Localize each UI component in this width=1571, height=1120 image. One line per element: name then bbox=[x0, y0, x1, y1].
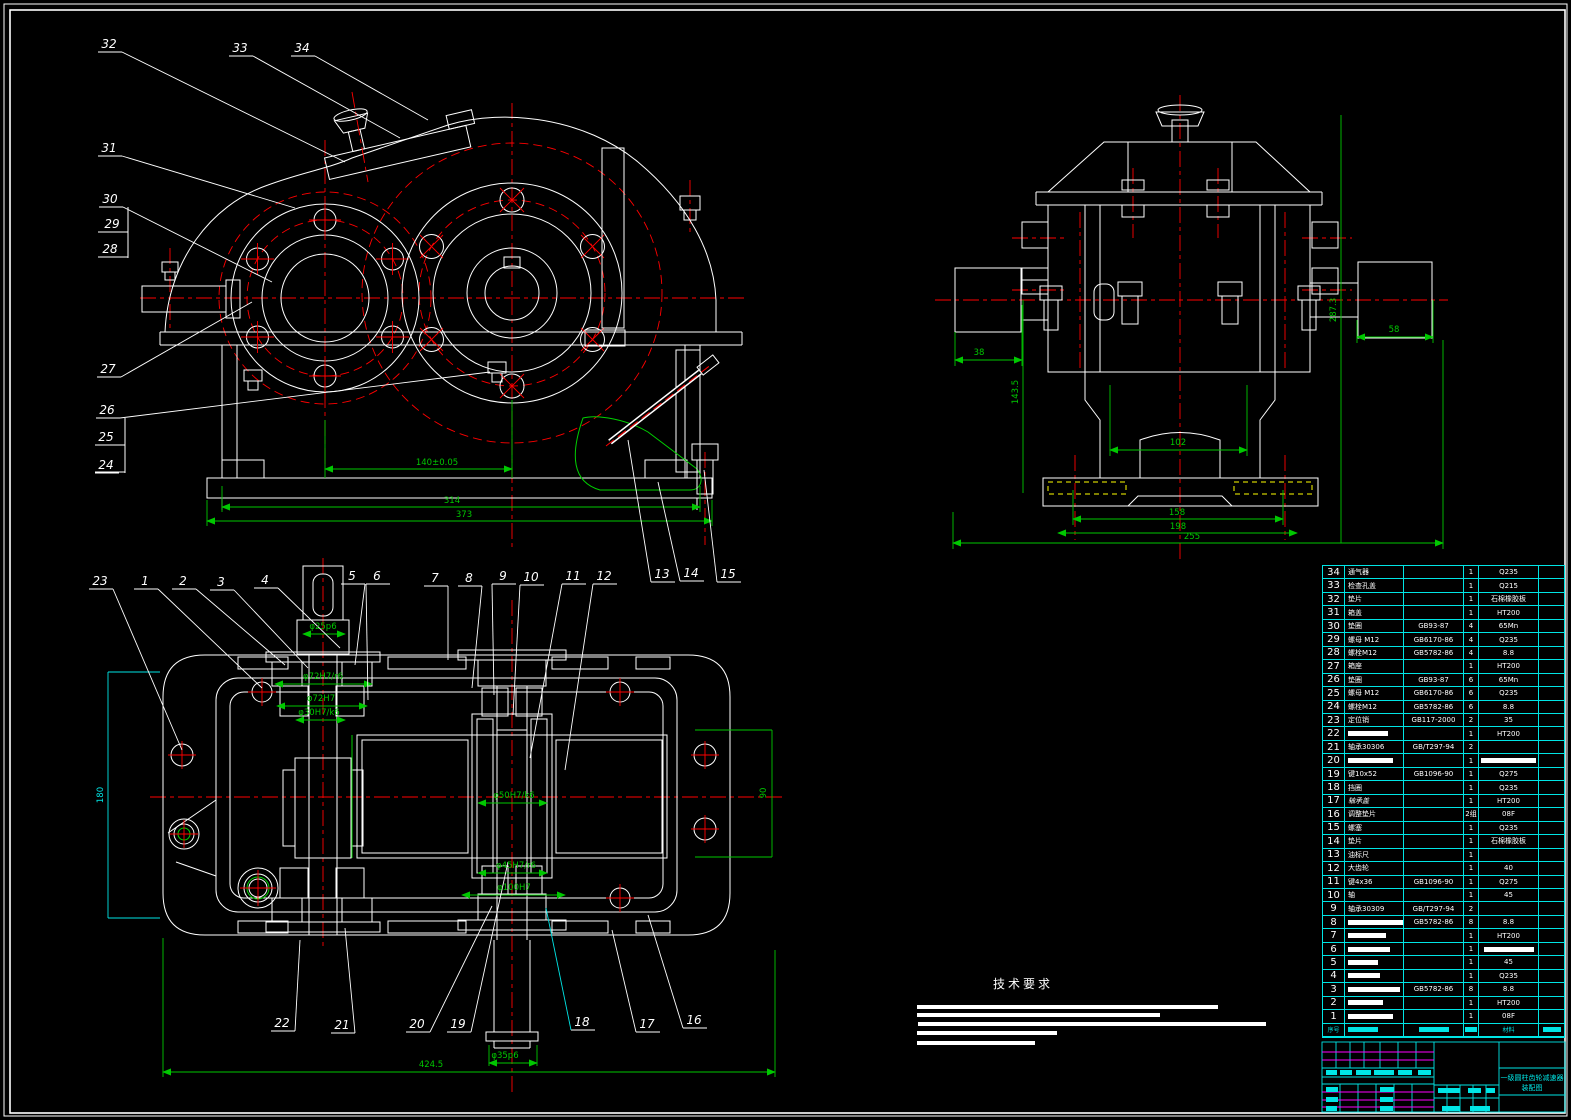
bom-cell-remark bbox=[1539, 822, 1564, 834]
bom-cell-material: Q235 bbox=[1479, 781, 1539, 793]
bom-cell-standard bbox=[1404, 956, 1464, 968]
bom-cell-name bbox=[1345, 929, 1404, 941]
dimension-label: φ72H7 bbox=[307, 694, 335, 704]
dimension-label: φ50H7/k6 bbox=[493, 791, 534, 801]
bom-cell-standard bbox=[1404, 593, 1464, 605]
bom-cell-remark bbox=[1539, 902, 1564, 914]
bom-cell-no: 23 bbox=[1323, 714, 1345, 726]
balloon-31: 31 bbox=[101, 141, 116, 155]
bom-cell-no: 25 bbox=[1323, 687, 1345, 699]
bom-cell-remark bbox=[1539, 606, 1564, 618]
bom-row-21: 21轴承30306GB/T297-942 bbox=[1323, 741, 1564, 754]
bom-cell-name: 轴 bbox=[1345, 889, 1404, 901]
balloon-25: 25 bbox=[98, 430, 113, 444]
bom-cell-qty: 1 bbox=[1464, 727, 1479, 739]
bom-cell-remark bbox=[1539, 970, 1564, 982]
bom-row-25: 25螺母 M12GB6170-866Q235 bbox=[1323, 687, 1564, 700]
bom-cell-standard bbox=[1404, 849, 1464, 861]
title-block-redaction-bar bbox=[1340, 1070, 1352, 1075]
bom-cell-qty: 4 bbox=[1464, 620, 1479, 632]
bom-cell-material: HT200 bbox=[1479, 727, 1539, 739]
dimension-label: 90 bbox=[759, 788, 769, 799]
title-block-redaction-bar bbox=[1442, 1106, 1460, 1111]
bom-cell-qty: 2 bbox=[1464, 741, 1479, 753]
bom-cell-qty: 4 bbox=[1464, 633, 1479, 645]
dimension-label: φ45H7/r6 bbox=[496, 861, 536, 871]
dimension-label: 140±0.05 bbox=[416, 458, 458, 468]
bom-row-31: 31箱盖1HT200 bbox=[1323, 606, 1564, 619]
bom-cell-remark bbox=[1539, 808, 1564, 820]
bom-cell-no: 8 bbox=[1323, 916, 1345, 928]
bom-row-3: 3GB5782-8688.8 bbox=[1323, 983, 1564, 996]
bom-cell-remark bbox=[1539, 660, 1564, 672]
bom-cell-name: 轴承盖 bbox=[1345, 795, 1404, 807]
breather-assembly bbox=[315, 83, 479, 179]
bom-cell-name: 大齿轮 bbox=[1345, 862, 1404, 874]
bom-row-1: 1108F bbox=[1323, 1010, 1564, 1023]
bom-row-22: 221HT200 bbox=[1323, 727, 1564, 740]
bom-cell-name: 调整垫片 bbox=[1345, 808, 1404, 820]
bom-row-28: 28螺栓M12GB5782-8648.8 bbox=[1323, 647, 1564, 660]
bom-cell-material bbox=[1479, 754, 1539, 766]
bom-cell-name bbox=[1345, 754, 1404, 766]
bom-cell-no: 31 bbox=[1323, 606, 1345, 618]
bom-cell-no: 26 bbox=[1323, 674, 1345, 686]
balloon-7: 7 bbox=[431, 571, 439, 585]
bom-cell-standard bbox=[1404, 929, 1464, 941]
bom-row-18: 18挡圈1Q235 bbox=[1323, 781, 1564, 794]
bom-cell-qty: 1 bbox=[1464, 781, 1479, 793]
bom-cell-remark bbox=[1539, 929, 1564, 941]
bom-cell-remark bbox=[1539, 849, 1564, 861]
bom-cell-material: 8.8 bbox=[1479, 983, 1539, 995]
bom-cell-material: Q215 bbox=[1479, 579, 1539, 591]
bom-cell-material: 45 bbox=[1479, 956, 1539, 968]
bom-row-15: 15螺塞1Q235 bbox=[1323, 822, 1564, 835]
bom-cell-standard: GB5782-86 bbox=[1404, 983, 1464, 995]
bom-row-10: 10轴145 bbox=[1323, 889, 1564, 902]
bom-cell-remark bbox=[1539, 714, 1564, 726]
bom-cell-qty: 1 bbox=[1464, 862, 1479, 874]
bom-cell-qty: 1 bbox=[1464, 943, 1479, 955]
bom-cell-material: 08F bbox=[1479, 1010, 1539, 1022]
bom-cell-name bbox=[1345, 1010, 1404, 1022]
bom-cell-standard bbox=[1404, 889, 1464, 901]
bom-row-16: 16调整垫片2组08F bbox=[1323, 808, 1564, 821]
bom-header-remark bbox=[1539, 1024, 1564, 1036]
bom-header-qty bbox=[1464, 1024, 1479, 1036]
balloon-30: 30 bbox=[102, 192, 118, 206]
bom-cell-remark bbox=[1539, 701, 1564, 713]
bom-cell-material: 石棉橡胶板 bbox=[1479, 593, 1539, 605]
bom-cell-name: 垫片 bbox=[1345, 593, 1404, 605]
title-block-redaction-bar bbox=[1374, 1070, 1394, 1075]
dimension-label: 373 bbox=[456, 510, 472, 520]
bom-cell-no: 11 bbox=[1323, 876, 1345, 888]
bom-cell-material: 65Mn bbox=[1479, 620, 1539, 632]
bom-cell-qty: 1 bbox=[1464, 849, 1479, 861]
bom-cell-name bbox=[1345, 943, 1404, 955]
balloon-leader bbox=[315, 56, 428, 120]
bom-cell-remark bbox=[1539, 741, 1564, 753]
bom-cell-remark bbox=[1539, 876, 1564, 888]
side-view bbox=[935, 95, 1448, 560]
balloon-32: 32 bbox=[101, 37, 116, 51]
bom-cell-standard: GB6170-86 bbox=[1404, 633, 1464, 645]
bom-cell-no: 7 bbox=[1323, 929, 1345, 941]
dimension-label: 58 bbox=[1389, 325, 1400, 335]
bom-cell-remark bbox=[1539, 647, 1564, 659]
bom-cell-material: Q275 bbox=[1479, 768, 1539, 780]
bom-cell-name: 箱座 bbox=[1345, 660, 1404, 672]
bom-cell-no: 27 bbox=[1323, 660, 1345, 672]
bom-cell-standard bbox=[1404, 579, 1464, 591]
bom-cell-no: 32 bbox=[1323, 593, 1345, 605]
bom-cell-qty: 2组 bbox=[1464, 808, 1479, 820]
dimension-label: 287.3 bbox=[1329, 298, 1339, 322]
bom-cell-material: HT200 bbox=[1479, 660, 1539, 672]
bom-cell-qty: 1 bbox=[1464, 754, 1479, 766]
bom-cell-no: 14 bbox=[1323, 835, 1345, 847]
bom-cell-standard: GB6170-86 bbox=[1404, 687, 1464, 699]
bom-cell-standard bbox=[1404, 822, 1464, 834]
balloon-8: 8 bbox=[465, 571, 473, 585]
flange-holes bbox=[169, 682, 716, 908]
balloon-leader bbox=[612, 930, 636, 1032]
bom-cell-no: 2 bbox=[1323, 997, 1345, 1009]
bom-cell-name: 垫圈 bbox=[1345, 674, 1404, 686]
title-block-redaction-bar bbox=[1380, 1087, 1394, 1092]
title-block-redaction-bar bbox=[1470, 1106, 1490, 1111]
balloon-13: 13 bbox=[654, 567, 669, 581]
bom-cell-qty: 1 bbox=[1464, 929, 1479, 941]
bom-row-30: 30垫圈GB93-87465Mn bbox=[1323, 620, 1564, 633]
title-block-redaction-bar bbox=[1326, 1070, 1337, 1075]
bom-cell-qty: 1 bbox=[1464, 579, 1479, 591]
balloon-leader bbox=[158, 589, 262, 688]
bom-header-material: 材料 bbox=[1479, 1024, 1539, 1036]
balloon-leader bbox=[648, 915, 683, 1028]
bom-cell-standard bbox=[1404, 566, 1464, 578]
bom-cell-name: 轴承30306 bbox=[1345, 741, 1404, 753]
oil-pool bbox=[575, 417, 701, 490]
bom-cell-no: 16 bbox=[1323, 808, 1345, 820]
balloon-leader bbox=[120, 372, 490, 418]
bom-cell-standard bbox=[1404, 835, 1464, 847]
balloon-leader bbox=[355, 584, 365, 665]
balloon-leader bbox=[123, 207, 272, 282]
bom-row-29: 29螺母 M12GB6170-864Q235 bbox=[1323, 633, 1564, 646]
bom-cell-qty: 1 bbox=[1464, 835, 1479, 847]
tech-req-redacted-line bbox=[917, 1031, 1057, 1035]
bom-cell-qty: 1 bbox=[1464, 970, 1479, 982]
bom-cell-standard: GB/T297-94 bbox=[1404, 902, 1464, 914]
bom-header-standard bbox=[1404, 1024, 1464, 1036]
balloon-leader bbox=[546, 908, 571, 1030]
bom-cell-standard bbox=[1404, 754, 1464, 766]
bom-cell-name: 垫片 bbox=[1345, 835, 1404, 847]
dimension-label: 180 bbox=[96, 787, 106, 803]
bom-header-name bbox=[1345, 1024, 1404, 1036]
bom-cell-qty: 6 bbox=[1464, 687, 1479, 699]
bom-cell-qty: 1 bbox=[1464, 1010, 1479, 1022]
bom-cell-name: 螺母 M12 bbox=[1345, 687, 1404, 699]
bom-cell-name: 定位销 bbox=[1345, 714, 1404, 726]
balloon-5: 5 bbox=[348, 569, 356, 583]
bom-cell-standard bbox=[1404, 795, 1464, 807]
bom-cell-remark bbox=[1539, 795, 1564, 807]
title-block-redaction-bar bbox=[1326, 1106, 1337, 1111]
bom-cell-remark bbox=[1539, 674, 1564, 686]
bom-cell-material: 8.8 bbox=[1479, 701, 1539, 713]
bom-cell-no: 1 bbox=[1323, 1010, 1345, 1022]
bom-cell-remark bbox=[1539, 781, 1564, 793]
bom-row-20: 201 bbox=[1323, 754, 1564, 767]
cad-drawing-sheet: 3233343130292827262524131415231234567891… bbox=[0, 0, 1571, 1120]
tech-req-redacted-line bbox=[917, 1005, 1218, 1009]
tech-req-heading: 技术要求 bbox=[993, 975, 1300, 992]
bom-cell-no: 24 bbox=[1323, 701, 1345, 713]
balloon-17: 17 bbox=[639, 1017, 655, 1031]
bom-cell-remark bbox=[1539, 566, 1564, 578]
bom-cell-name bbox=[1345, 970, 1404, 982]
bom-cell-name: 轴承30309 bbox=[1345, 902, 1404, 914]
balloon-4: 4 bbox=[261, 573, 269, 587]
bom-cell-material: 35 bbox=[1479, 714, 1539, 726]
bom-cell-remark bbox=[1539, 862, 1564, 874]
bom-cell-material: 65Mn bbox=[1479, 674, 1539, 686]
balloon-leader bbox=[113, 589, 182, 750]
bom-cell-no: 18 bbox=[1323, 781, 1345, 793]
bom-cell-qty: 1 bbox=[1464, 566, 1479, 578]
balloon-11: 11 bbox=[565, 569, 580, 583]
bom-cell-name: 键4x36 bbox=[1345, 876, 1404, 888]
bom-cell-remark bbox=[1539, 593, 1564, 605]
balloon-18: 18 bbox=[574, 1015, 590, 1029]
bom-header-row: 序号材料 bbox=[1323, 1024, 1564, 1037]
bom-row-32: 32垫片1石棉橡胶板 bbox=[1323, 593, 1564, 606]
balloon-16: 16 bbox=[686, 1013, 702, 1027]
flange-hatch-bands bbox=[238, 657, 670, 933]
bom-cell-material: 8.8 bbox=[1479, 916, 1539, 928]
bom-cell-material: 40 bbox=[1479, 862, 1539, 874]
balloon-leader bbox=[122, 156, 295, 208]
bom-cell-qty: 1 bbox=[1464, 593, 1479, 605]
bom-cell-material bbox=[1479, 741, 1539, 753]
bom-row-8: 8GB5782-8688.8 bbox=[1323, 916, 1564, 929]
bom-row-13: 13油标尺1 bbox=[1323, 849, 1564, 862]
bom-cell-qty: 6 bbox=[1464, 674, 1479, 686]
bom-cell-material bbox=[1479, 849, 1539, 861]
dimension-label: 102 bbox=[1170, 438, 1186, 448]
bom-cell-qty: 4 bbox=[1464, 647, 1479, 659]
bom-cell-no: 13 bbox=[1323, 849, 1345, 861]
bom-cell-qty: 1 bbox=[1464, 889, 1479, 901]
output-shaft-top bbox=[357, 650, 667, 1048]
bom-cell-standard: GB117-2000 bbox=[1404, 714, 1464, 726]
bom-cell-standard: GB1096-90 bbox=[1404, 876, 1464, 888]
dimension-label: 314 bbox=[444, 496, 460, 506]
balloon-28: 28 bbox=[102, 242, 118, 256]
balloon-1: 1 bbox=[141, 574, 149, 588]
input-shaft-front bbox=[142, 262, 240, 318]
title-block-redaction-bar bbox=[1380, 1106, 1393, 1111]
bom-row-17: 17轴承盖1HT200 bbox=[1323, 795, 1564, 808]
balloon-leader bbox=[430, 906, 492, 1032]
bom-cell-remark bbox=[1539, 835, 1564, 847]
bom-cell-qty: 1 bbox=[1464, 876, 1479, 888]
bom-cell-qty: 1 bbox=[1464, 660, 1479, 672]
bom-cell-qty: 6 bbox=[1464, 701, 1479, 713]
balloon-22: 22 bbox=[274, 1016, 289, 1030]
bom-cell-no: 3 bbox=[1323, 983, 1345, 995]
dimension-label: φ100H7 bbox=[497, 883, 531, 893]
bom-cell-no: 33 bbox=[1323, 579, 1345, 591]
bom-cell-standard bbox=[1404, 943, 1464, 955]
bom-cell-material bbox=[1479, 902, 1539, 914]
bom-cell-name: 螺栓M12 bbox=[1345, 647, 1404, 659]
bom-row-6: 61 bbox=[1323, 943, 1564, 956]
balloon-leader bbox=[704, 470, 717, 582]
balloon-33: 33 bbox=[232, 41, 247, 55]
bom-cell-remark bbox=[1539, 579, 1564, 591]
balloon-leader bbox=[530, 584, 562, 758]
balloon-leader bbox=[366, 584, 368, 700]
bom-cell-material: 08F bbox=[1479, 808, 1539, 820]
balloon-leader bbox=[472, 586, 482, 688]
bom-cell-name: 检查孔盖 bbox=[1345, 579, 1404, 591]
tech-req-redacted-line bbox=[918, 1022, 1266, 1026]
bom-cell-standard bbox=[1404, 606, 1464, 618]
bom-cell-standard: GB93-87 bbox=[1404, 674, 1464, 686]
title-block: 一级圆柱齿轮减速器 装配图 bbox=[1322, 1042, 1565, 1112]
bom-row-7: 71HT200 bbox=[1323, 929, 1564, 942]
front-view bbox=[95, 83, 748, 548]
balloon-24: 24 bbox=[98, 458, 113, 472]
balloon-10: 10 bbox=[523, 570, 539, 584]
bom-cell-material: 8.8 bbox=[1479, 647, 1539, 659]
bom-cell-name: 箱盖 bbox=[1345, 606, 1404, 618]
bom-cell-material: Q235 bbox=[1479, 822, 1539, 834]
bom-row-33: 33检查孔盖1Q215 bbox=[1323, 579, 1564, 592]
balloon-26: 26 bbox=[99, 403, 115, 417]
bom-cell-qty: 2 bbox=[1464, 714, 1479, 726]
bom-cell-qty: 1 bbox=[1464, 822, 1479, 834]
bom-cell-remark bbox=[1539, 727, 1564, 739]
bom-cell-qty: 1 bbox=[1464, 606, 1479, 618]
bom-cell-no: 5 bbox=[1323, 956, 1345, 968]
bom-row-12: 12大齿轮140 bbox=[1323, 862, 1564, 875]
bom-cell-remark bbox=[1539, 768, 1564, 780]
drawing-title: 一级圆柱齿轮减速器 bbox=[1501, 1073, 1564, 1082]
bom-cell-qty: 8 bbox=[1464, 983, 1479, 995]
bom-cell-qty: 1 bbox=[1464, 997, 1479, 1009]
bom-cell-no: 6 bbox=[1323, 943, 1345, 955]
bom-cell-remark bbox=[1539, 943, 1564, 955]
bom-cell-material: Q235 bbox=[1479, 566, 1539, 578]
bom-cell-material: 石棉橡胶板 bbox=[1479, 835, 1539, 847]
bom-cell-name bbox=[1345, 997, 1404, 1009]
drawing-subtitle: 装配图 bbox=[1522, 1083, 1543, 1092]
bom-row-4: 41Q235 bbox=[1323, 970, 1564, 983]
dimension-label: 143.5 bbox=[1011, 380, 1021, 404]
balloon-2: 2 bbox=[179, 574, 187, 588]
bom-cell-material bbox=[1479, 943, 1539, 955]
dimension-label: φ25p6 bbox=[309, 622, 336, 632]
bom-cell-standard: GB1096-90 bbox=[1404, 768, 1464, 780]
bom-cell-no: 21 bbox=[1323, 741, 1345, 753]
dimension-label: 198 bbox=[1170, 522, 1186, 532]
bom-cell-name: 键10x52 bbox=[1345, 768, 1404, 780]
bom-cell-no: 9 bbox=[1323, 902, 1345, 914]
bom-cell-no: 19 bbox=[1323, 768, 1345, 780]
bom-cell-remark bbox=[1539, 1010, 1564, 1022]
bom-cell-no: 22 bbox=[1323, 727, 1345, 739]
bom-cell-standard: GB5782-86 bbox=[1404, 916, 1464, 928]
balloon-15: 15 bbox=[720, 567, 735, 581]
bom-cell-no: 17 bbox=[1323, 795, 1345, 807]
balloon-20: 20 bbox=[409, 1017, 425, 1031]
bom-row-23: 23定位销GB117-2000235 bbox=[1323, 714, 1564, 727]
bom-cell-material: 45 bbox=[1479, 889, 1539, 901]
bom-cell-standard bbox=[1404, 1010, 1464, 1022]
balloon-19: 19 bbox=[450, 1017, 465, 1031]
bom-row-5: 5145 bbox=[1323, 956, 1564, 969]
title-block-redaction-bar bbox=[1380, 1097, 1393, 1102]
title-block-redaction-bar bbox=[1438, 1088, 1460, 1093]
bom-cell-qty: 8 bbox=[1464, 916, 1479, 928]
bom-row-27: 27箱座1HT200 bbox=[1323, 660, 1564, 673]
balloon-6: 6 bbox=[373, 569, 381, 583]
oil-dipstick bbox=[606, 355, 719, 446]
title-block-redaction-bar bbox=[1468, 1088, 1481, 1093]
bom-cell-standard bbox=[1404, 660, 1464, 672]
bom-cell-standard bbox=[1404, 997, 1464, 1009]
bom-cell-name: 螺塞 bbox=[1345, 822, 1404, 834]
title-block-redaction-bar bbox=[1356, 1070, 1371, 1075]
balloon-leader bbox=[295, 940, 300, 1031]
bom-cell-remark bbox=[1539, 997, 1564, 1009]
balloon-leader bbox=[565, 584, 593, 770]
balloon-9: 9 bbox=[499, 569, 507, 583]
balloon-14: 14 bbox=[683, 566, 698, 580]
bom-cell-standard: GB/T297-94 bbox=[1404, 741, 1464, 753]
tech-req-redacted-line bbox=[917, 1041, 1035, 1045]
bom-row-11: 11键4x36GB1096-901Q275 bbox=[1323, 876, 1564, 889]
bom-cell-material: Q275 bbox=[1479, 876, 1539, 888]
bom-cell-material: Q235 bbox=[1479, 633, 1539, 645]
title-block-redaction-bar bbox=[1326, 1087, 1338, 1092]
bom-cell-remark bbox=[1539, 889, 1564, 901]
balloon-leader bbox=[253, 56, 400, 138]
dimension-label: φ30H7/k6 bbox=[298, 708, 339, 718]
bom-cell-standard: GB5782-86 bbox=[1404, 647, 1464, 659]
bom-cell-qty: 1 bbox=[1464, 795, 1479, 807]
bom-cell-remark bbox=[1539, 633, 1564, 645]
bom-cell-qty: 1 bbox=[1464, 768, 1479, 780]
bom-cell-no: 12 bbox=[1323, 862, 1345, 874]
title-block-redaction-bar bbox=[1418, 1070, 1431, 1075]
dimension-label: 255 bbox=[1184, 532, 1200, 542]
bom-cell-no: 30 bbox=[1323, 620, 1345, 632]
bom-cell-no: 29 bbox=[1323, 633, 1345, 645]
bom-cell-name bbox=[1345, 916, 1404, 928]
balloon-23: 23 bbox=[92, 574, 107, 588]
bom-cell-no: 28 bbox=[1323, 647, 1345, 659]
bom-row-26: 26垫圈GB93-87665Mn bbox=[1323, 674, 1564, 687]
flange-bolts-side bbox=[1122, 180, 1229, 217]
tech-req-redacted-line bbox=[917, 1013, 1160, 1017]
